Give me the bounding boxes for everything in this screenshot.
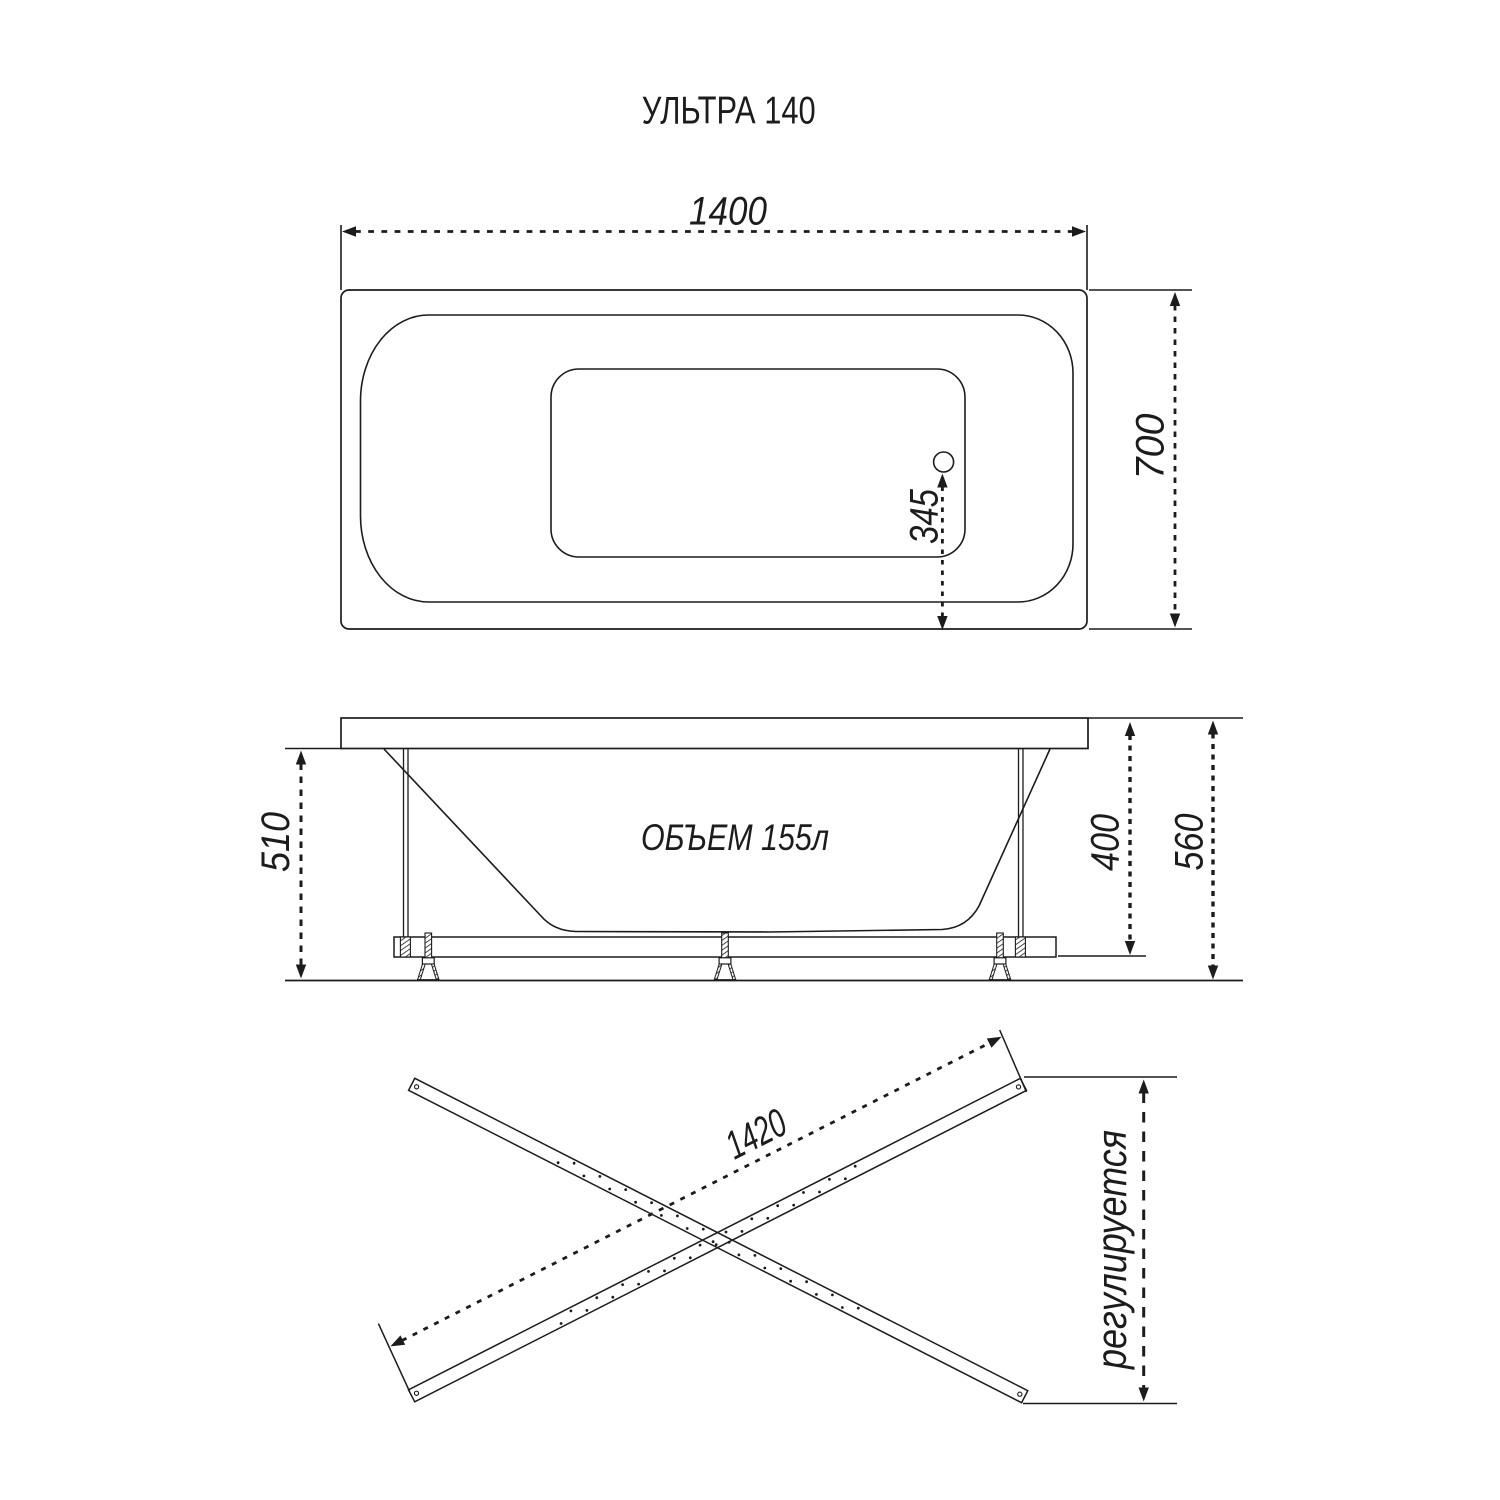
svg-text:УЛЬТРА 140: УЛЬТРА 140 xyxy=(642,90,816,133)
svg-text:560: 560 xyxy=(1168,814,1212,871)
svg-text:510: 510 xyxy=(254,812,298,872)
svg-text:700: 700 xyxy=(1129,414,1173,480)
svg-text:345: 345 xyxy=(903,488,947,544)
svg-text:1400: 1400 xyxy=(689,190,767,234)
svg-text:регулируется: регулируется xyxy=(1088,1130,1135,1371)
svg-text:400: 400 xyxy=(1084,814,1128,871)
svg-text:1420: 1420 xyxy=(719,1101,794,1168)
svg-text:ОБЪЕМ 155л: ОБЪЕМ 155л xyxy=(641,817,829,858)
